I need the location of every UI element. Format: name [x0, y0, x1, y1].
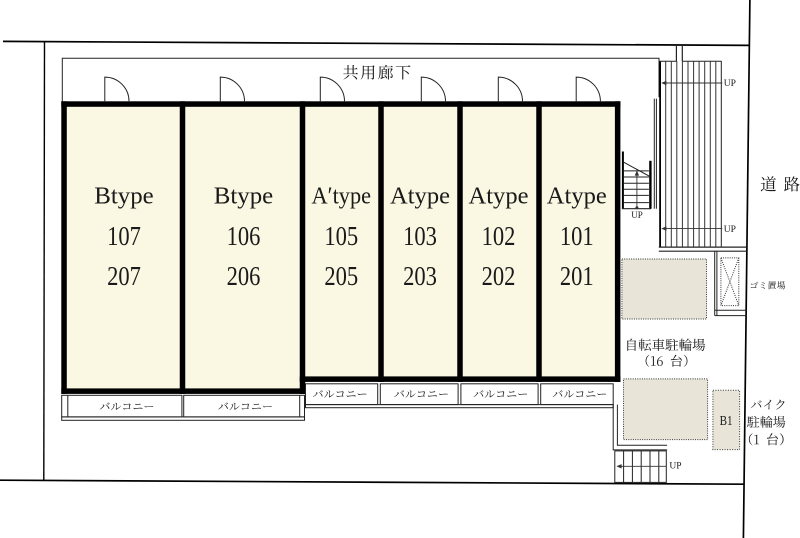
svg-text:Atype: Atype [547, 182, 607, 209]
svg-text:207: 207 [107, 261, 141, 291]
svg-text:UP: UP [724, 225, 736, 235]
svg-text:102: 102 [482, 221, 516, 251]
svg-text:103: 103 [403, 221, 437, 251]
svg-text:105: 105 [324, 221, 358, 251]
svg-text:Atype: Atype [469, 182, 529, 209]
svg-text:205: 205 [324, 261, 358, 291]
svg-text:201: 201 [560, 261, 594, 291]
svg-text:202: 202 [482, 261, 516, 291]
svg-text:107: 107 [107, 221, 141, 251]
svg-text:UP: UP [669, 462, 681, 472]
svg-text:Btype: Btype [94, 182, 154, 209]
svg-text:A′type: A′type [312, 182, 372, 209]
svg-text:UP: UP [724, 79, 736, 89]
svg-text:Btype: Btype [214, 182, 274, 209]
svg-text:106: 106 [227, 221, 261, 251]
svg-text:203: 203 [403, 261, 437, 291]
svg-text:101: 101 [560, 221, 594, 251]
svg-text:B1: B1 [720, 414, 733, 429]
svg-text:UP: UP [631, 210, 643, 220]
svg-text:Atype: Atype [390, 182, 450, 209]
svg-text:206: 206 [227, 261, 261, 291]
